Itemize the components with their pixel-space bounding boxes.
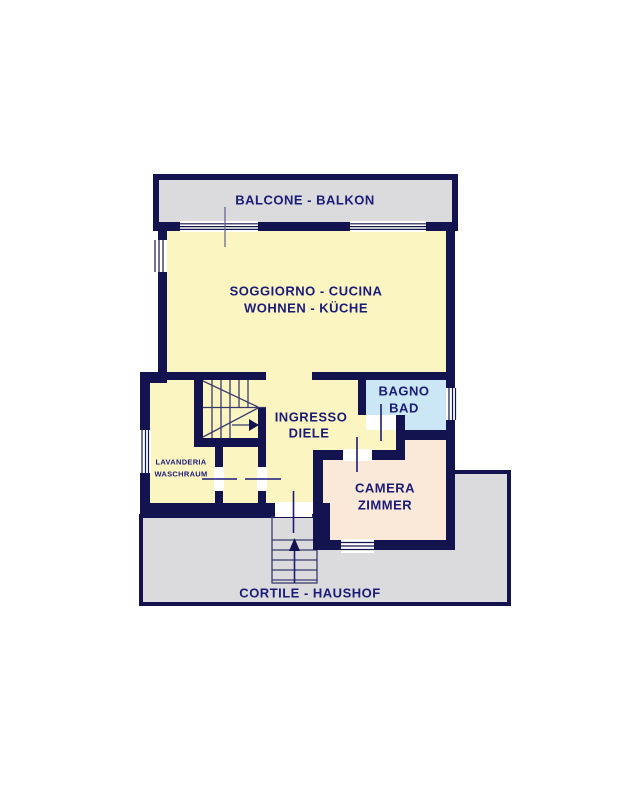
floor-plan-svg	[0, 0, 631, 800]
balcony-label: BALCONE - BALKON	[235, 194, 374, 207]
bedroom-south-window	[341, 539, 374, 553]
courtyard-label: CORTILE - HAUSHOF	[239, 587, 380, 600]
living-kitchen-label-it: SOGGIORNO - CUCINA	[230, 285, 383, 298]
laundry-west-window	[139, 430, 151, 473]
hallway-label-de: DIELE	[289, 427, 330, 440]
balcony-window-right	[350, 221, 426, 232]
living-west-window	[151, 240, 167, 272]
laundry-label-it: LAVANDERIA	[155, 458, 206, 466]
bathroom-label-de: BAD	[389, 402, 419, 415]
laundry-label-de: WASCHRAUM	[154, 470, 207, 478]
bathroom-east-window	[446, 388, 459, 420]
bedroom-label-it: CAMERA	[355, 482, 415, 495]
bathroom-label-it: BAGNO	[379, 385, 430, 398]
living-kitchen-label-de: WOHNEN - KÜCHE	[244, 302, 368, 315]
bedroom-label-de: ZIMMER	[358, 499, 412, 512]
floor-plan-page: { "colors": { "wall_navy": "#131350", "l…	[0, 0, 631, 800]
balcony-window-left	[180, 221, 258, 232]
hallway-label-it: INGRESSO	[275, 411, 348, 424]
